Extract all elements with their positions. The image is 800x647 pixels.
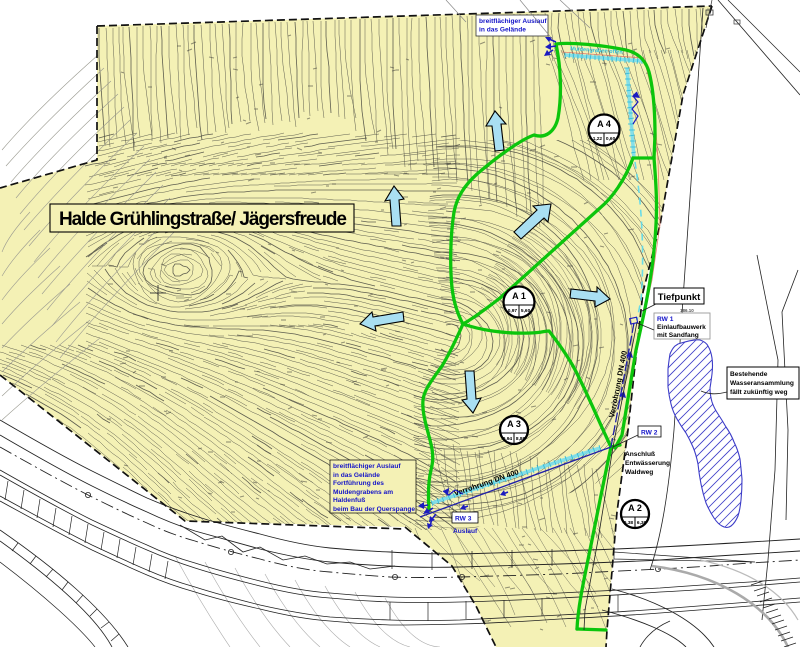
svg-text:in das Gelände: in das Gelände xyxy=(479,27,526,34)
svg-text:A 3: A 3 xyxy=(507,419,521,429)
svg-text:5,60: 5,60 xyxy=(521,308,531,314)
svg-text:0,60: 0,60 xyxy=(606,136,616,142)
svg-text:RW 1: RW 1 xyxy=(657,316,674,323)
svg-text:0,38: 0,38 xyxy=(624,520,634,526)
svg-text:A 4: A 4 xyxy=(597,119,611,129)
svg-text:beim Bau der Querspange: beim Bau der Querspange xyxy=(333,506,415,513)
svg-text:Tiefpunkt: Tiefpunkt xyxy=(658,292,701,303)
svg-text:186.10: 186.10 xyxy=(680,308,694,313)
svg-text:Muldengrabens am: Muldengrabens am xyxy=(333,489,393,496)
svg-text:Fortführung des: Fortführung des xyxy=(333,480,384,487)
svg-text:6,30: 6,30 xyxy=(637,520,647,526)
svg-text:Wasseransammlung: Wasseransammlung xyxy=(730,380,794,387)
svg-text:0,94: 0,94 xyxy=(503,436,513,442)
svg-text:Haldenfuß: Haldenfuß xyxy=(333,497,365,504)
svg-text:breitflächiger Auslauf: breitflächiger Auslauf xyxy=(333,463,401,470)
svg-text:A 2: A 2 xyxy=(628,503,642,513)
svg-text:Bestehende: Bestehende xyxy=(730,371,768,378)
svg-text:Entwässerung: Entwässerung xyxy=(625,460,670,467)
svg-text:in das Gelände: in das Gelände xyxy=(333,472,380,479)
svg-text:fällt zukünftig weg: fällt zukünftig weg xyxy=(730,389,788,396)
svg-text:breitflächiger Auslauf: breitflächiger Auslauf xyxy=(479,18,547,25)
svg-text:Halde Grühlingstraße/ Jägersfr: Halde Grühlingstraße/ Jägersfreude xyxy=(59,209,347,230)
svg-text:8,80: 8,80 xyxy=(516,436,526,442)
svg-text:1,22: 1,22 xyxy=(593,136,603,142)
svg-text:Auslauf: Auslauf xyxy=(453,528,478,535)
svg-text:Einlaufbauwerk: Einlaufbauwerk xyxy=(657,324,706,331)
svg-text:RW 3: RW 3 xyxy=(455,516,472,523)
svg-text:Anschluß: Anschluß xyxy=(625,451,655,458)
svg-text:A 1: A 1 xyxy=(512,291,526,301)
svg-text:mit Sandfang: mit Sandfang xyxy=(657,332,699,339)
svg-text:Waldweg: Waldweg xyxy=(625,469,653,476)
svg-text:RW 2: RW 2 xyxy=(641,430,658,437)
svg-text:0,97: 0,97 xyxy=(508,308,518,314)
